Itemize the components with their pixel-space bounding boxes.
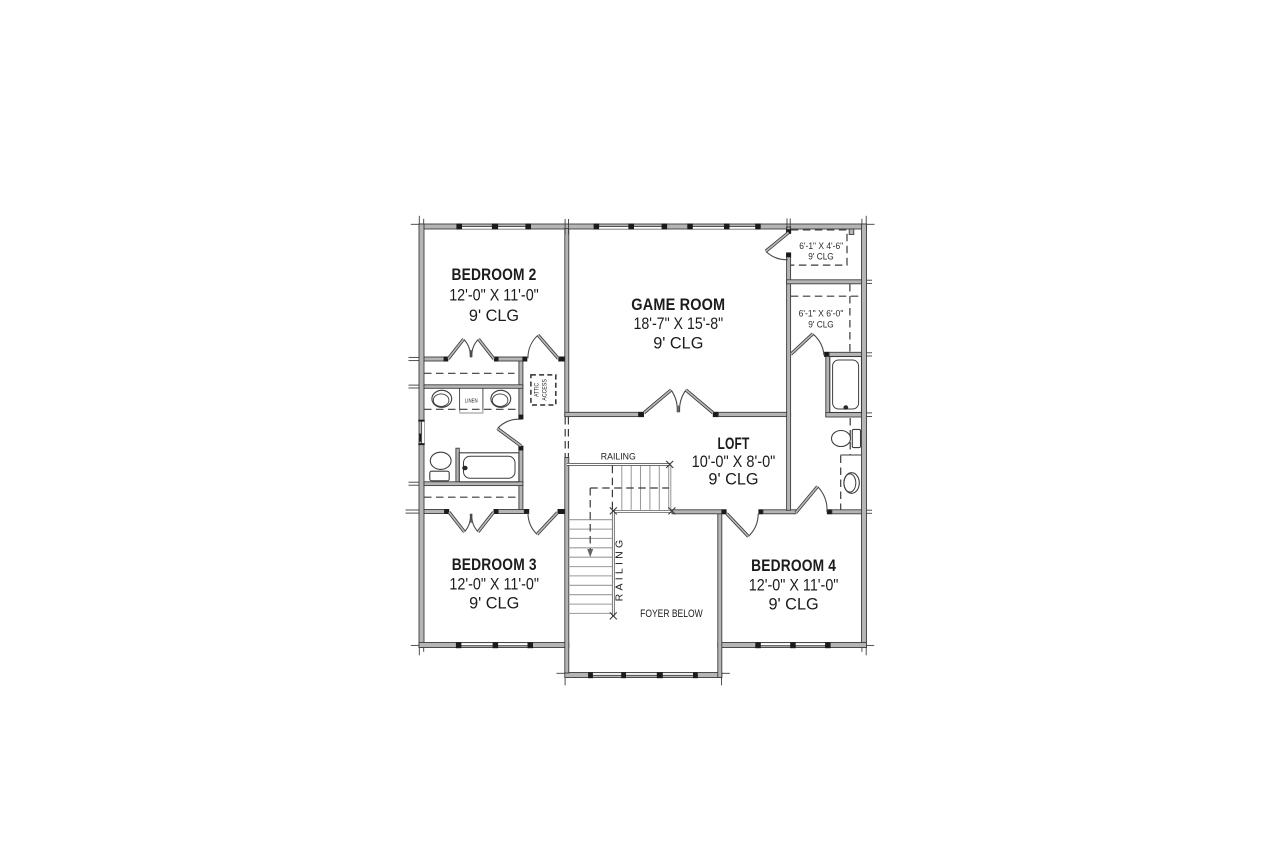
svg-text:9' CLG: 9' CLG [653,334,703,352]
svg-text:ACCESS: ACCESS [541,379,548,401]
svg-text:BEDROOM 4: BEDROOM 4 [751,557,836,575]
svg-text:9' CLG: 9' CLG [769,596,819,614]
svg-text:9' CLG: 9' CLG [469,307,519,325]
svg-text:LINEN: LINEN [465,399,478,405]
svg-text:6'-1" X 6'-0": 6'-1" X 6'-0" [799,309,844,319]
svg-text:BEDROOM 2: BEDROOM 2 [452,266,537,284]
svg-text:FOYER BELOW: FOYER BELOW [640,608,703,620]
svg-text:GAME ROOM: GAME ROOM [631,296,725,314]
svg-text:12'-0" X 11'-0": 12'-0" X 11'-0" [749,576,839,594]
svg-text:LOFT: LOFT [718,435,750,453]
svg-text:RAILING: RAILING [601,452,636,463]
svg-text:BEDROOM 3: BEDROOM 3 [452,556,537,574]
svg-text:9' CLG: 9' CLG [469,595,519,613]
svg-text:9' CLG: 9' CLG [808,320,834,330]
svg-text:18'-7" X 15'-8": 18'-7" X 15'-8" [633,315,723,333]
svg-text:6'-1" X 4'-6": 6'-1" X 4'-6" [799,241,843,251]
svg-text:ATTIC: ATTIC [534,383,541,397]
svg-text:10'-0" X 8'-0": 10'-0" X 8'-0" [692,453,776,471]
svg-text:9' CLG: 9' CLG [708,471,758,489]
svg-text:12'-0" X 11'-0": 12'-0" X 11'-0" [449,287,539,305]
svg-text:12'-0" X 11'-0": 12'-0" X 11'-0" [449,576,539,594]
svg-text:9' CLG: 9' CLG [808,252,834,262]
